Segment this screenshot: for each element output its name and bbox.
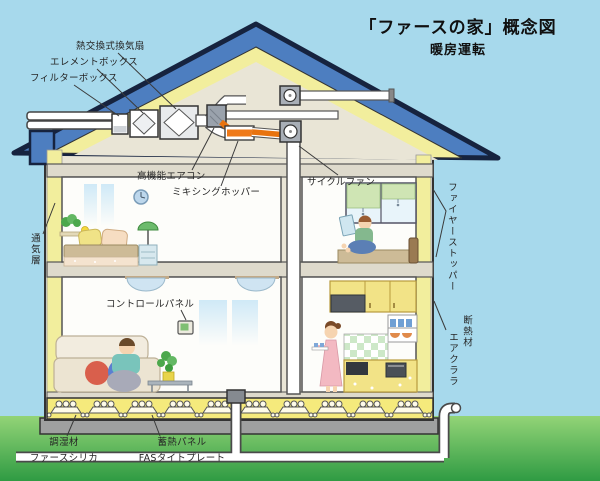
label-heat-storage-line1: 蓄熱パネル: [118, 435, 246, 451]
label-insulation-line1: 断熱材: [459, 315, 473, 387]
window: [346, 183, 416, 223]
label-element-box: エレメントボックス: [50, 57, 138, 69]
heat-exchanger-unit: [160, 106, 198, 139]
roof-fan-pipe: [300, 91, 390, 100]
label-insulation-material: 断熱材 エアクララ: [444, 315, 473, 387]
label-heat-storage-line2: FASタイトプレート: [118, 451, 246, 467]
oven: [386, 363, 406, 377]
fas-house-concept-diagram: 「ファースの家」概念図 暖房運転 熱交換式換気扇 エレメントボックス フィルター…: [0, 0, 600, 481]
label-control-panel: コントロールパネル: [106, 299, 194, 311]
roof-fan-unit: [280, 86, 300, 105]
label-humidity-line2: ファースシリカ: [6, 451, 122, 467]
element-box-unit: [130, 110, 158, 137]
vertical-duct: [287, 140, 300, 394]
label-high-performance-aircon: 高機能エアコン: [137, 171, 206, 183]
label-heat-exchange-fan: 熱交換式換気扇: [76, 41, 145, 53]
label-mixing-hopper: ミキシングホッパー: [172, 187, 260, 199]
wall-clock: [134, 190, 148, 204]
label-humidity-material: 調湿材 ファースシリカ: [6, 435, 122, 467]
control-panel-unit: [178, 321, 193, 334]
title-block: 「ファースの家」概念図 暖房運転: [320, 13, 596, 58]
label-filter-box: フィルターボックス: [30, 73, 118, 85]
label-cycle-fan: サイクルファン: [307, 177, 375, 189]
kids-room-contents: [338, 183, 418, 263]
sofa: [54, 336, 160, 392]
range-hood: [331, 295, 365, 312]
diagram-subtitle: 暖房運転: [320, 39, 596, 58]
diagram-title: 「ファースの家」概念図: [320, 13, 596, 38]
label-fire-stopper: ファイヤーストッパー: [445, 182, 457, 292]
stove: [346, 362, 368, 375]
dish-shelf: [388, 315, 417, 342]
attic-return-pipe: [226, 111, 338, 119]
label-insulation-line2: エアクララ: [445, 315, 459, 387]
cycle-fan-unit: [280, 121, 301, 142]
backsplash-tiles: [344, 334, 388, 361]
mixing-hopper-unit: [225, 126, 254, 140]
label-humidity-line1: 調湿材: [6, 435, 122, 451]
intake-pipes: [27, 112, 114, 129]
label-ventilation-layer: 通気層: [28, 233, 40, 266]
label-heat-storage-panel: 蓄熱パネル FASタイトプレート: [118, 435, 246, 467]
